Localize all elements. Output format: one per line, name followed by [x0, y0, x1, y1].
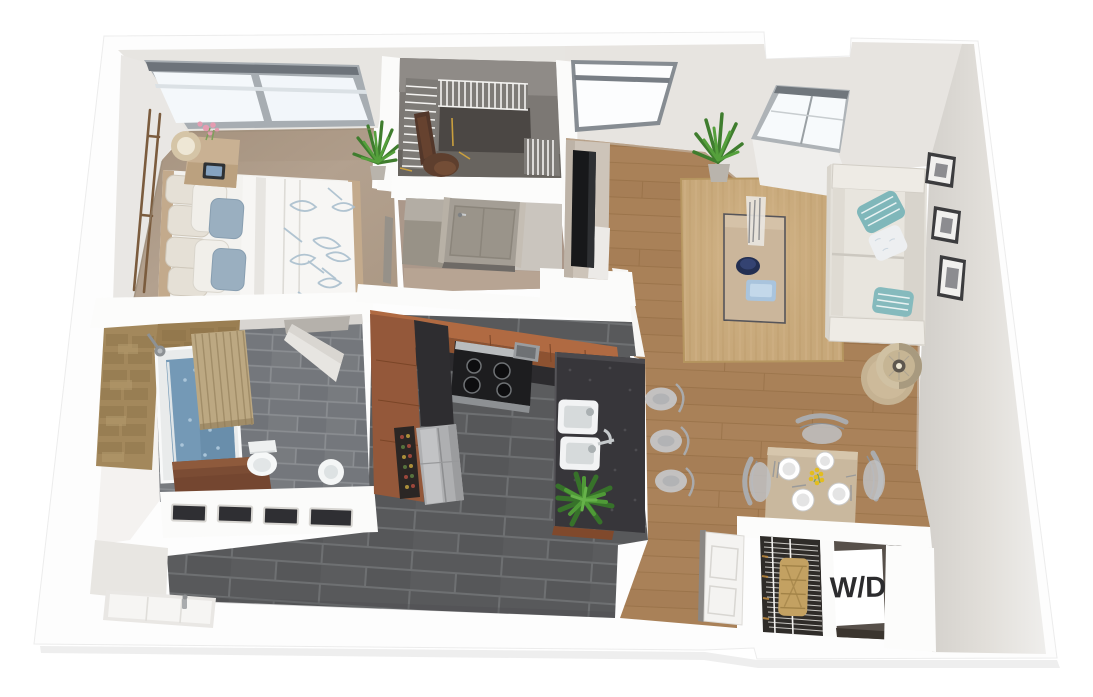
svg-text:W/D: W/D — [830, 572, 887, 605]
